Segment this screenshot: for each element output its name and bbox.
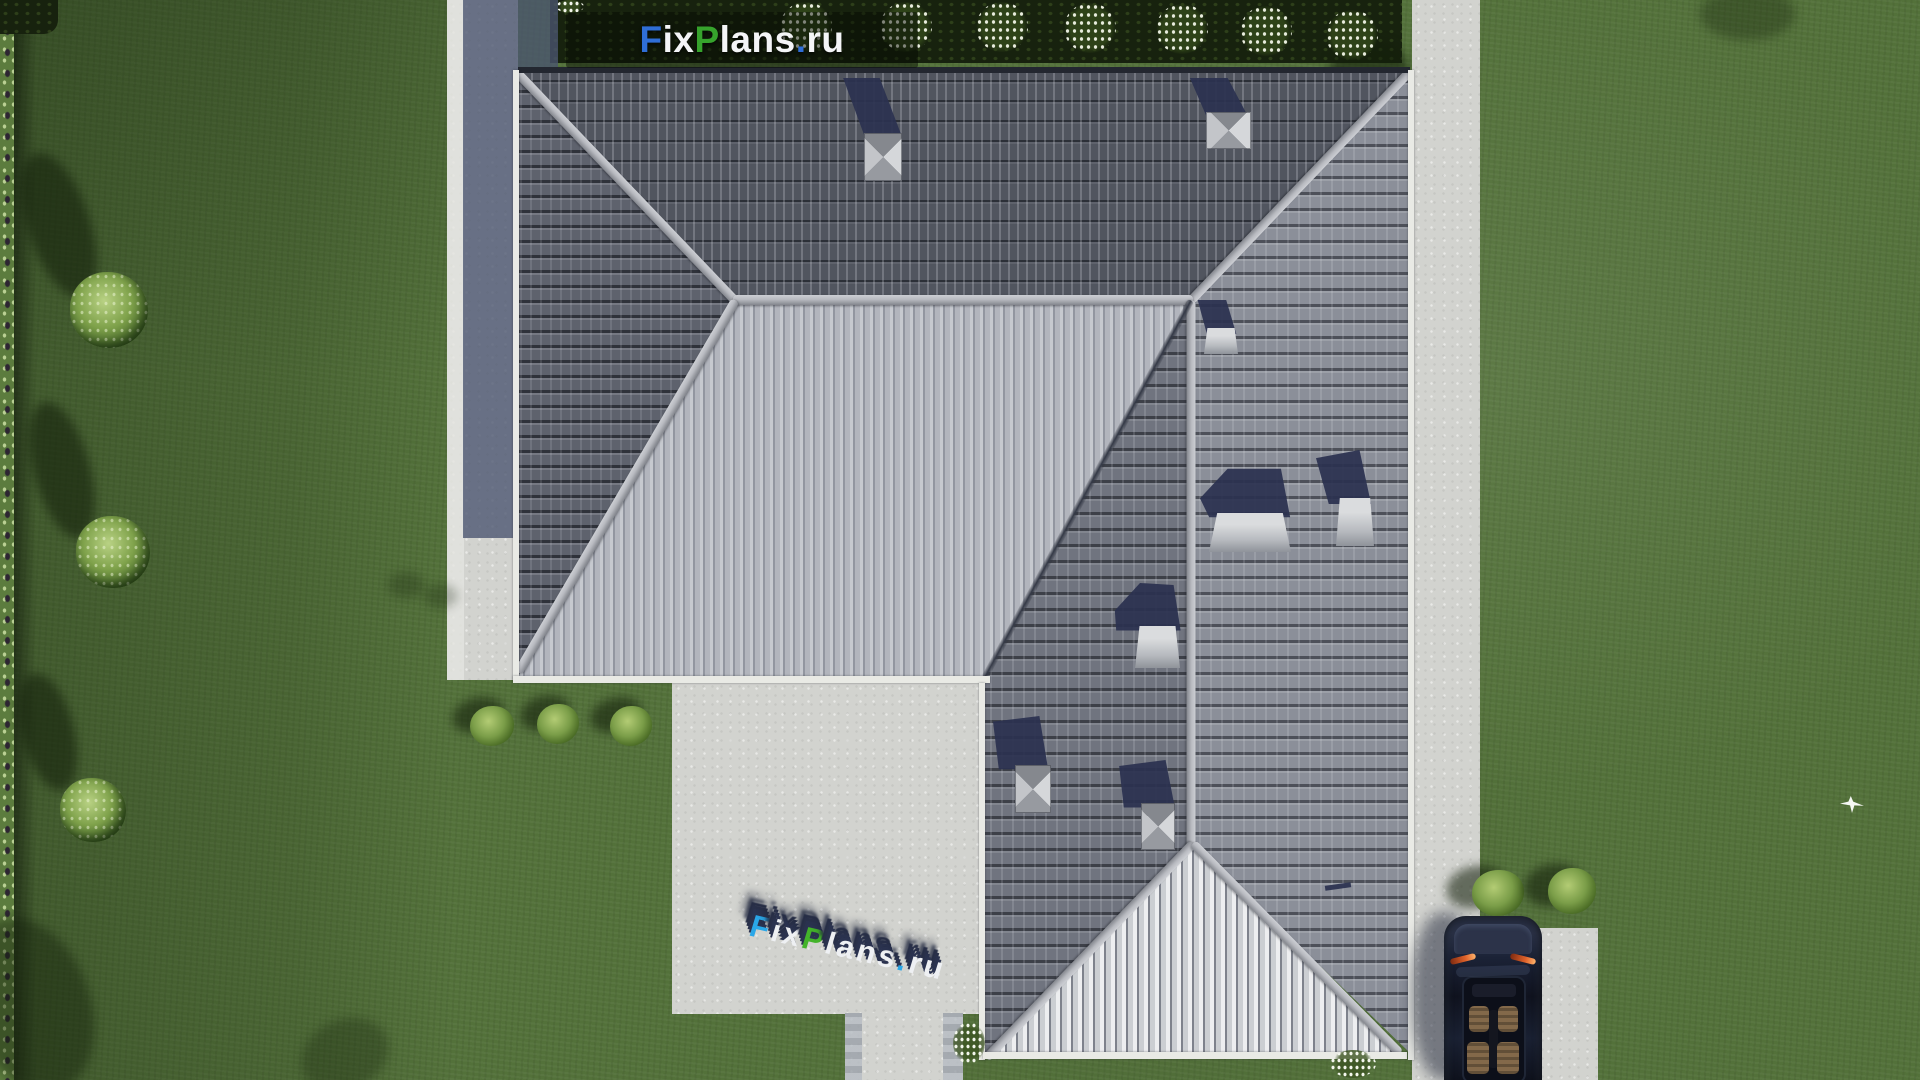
roof-hatch-small [1204, 328, 1238, 354]
car [1444, 916, 1542, 1080]
logo-letter: P [694, 19, 719, 61]
fascia-wing-west [979, 683, 985, 1060]
logo-letter: lans [720, 19, 796, 61]
flower-cluster-right [1330, 1050, 1376, 1078]
chimney-4 [1141, 803, 1175, 850]
roof-hatch-east [1336, 498, 1374, 546]
main-ridge [733, 295, 1193, 305]
roof-hatch-large [1209, 513, 1291, 552]
tree-3 [60, 778, 126, 842]
car-windshield-reflection [1456, 965, 1530, 978]
car-headrests [1472, 984, 1516, 997]
flower-bush-5 [1156, 4, 1208, 54]
fascia-south [513, 676, 990, 683]
car-taillight-left [1450, 953, 1477, 965]
aerial-render-scene: FixPlans.ru FixPlans.ru [0, 0, 1920, 1080]
logo-letter: F [640, 19, 663, 61]
car-seat-rear-left [1467, 1042, 1489, 1074]
fascia-east [1408, 70, 1414, 1060]
car-glass-roof [1462, 976, 1526, 1080]
chimney-1 [864, 133, 902, 181]
flower-bush-6 [1240, 6, 1292, 56]
tree-2 [76, 516, 150, 588]
chimney-3 [1015, 765, 1051, 813]
east-path [1412, 0, 1480, 930]
flower-bush-4 [1064, 3, 1116, 53]
chimney-2 [1206, 112, 1251, 149]
car-trunk [1454, 924, 1532, 954]
lawn-patch-1 [388, 572, 424, 598]
car-seat-front-left [1469, 1006, 1489, 1032]
house-shadow-west [463, 0, 518, 538]
lawn-patch-2 [424, 584, 458, 608]
logo-letter: ru [806, 19, 844, 61]
flower-bush-3 [976, 2, 1028, 52]
tree-1 [70, 272, 148, 348]
fixplans-logo: FixPlans.ru [566, 12, 918, 68]
car-seat-front-right [1498, 1006, 1518, 1032]
west-walkway-lit-edge [447, 0, 464, 680]
car-seat-rear-right [1497, 1042, 1519, 1074]
hedge-topleft-corner [0, 0, 58, 34]
flower-bush-7 [1326, 10, 1378, 60]
fascia-west [513, 70, 519, 680]
car-taillight-right [1510, 953, 1537, 965]
logo-letter: . [796, 19, 807, 61]
flower-cluster-left [953, 1022, 985, 1064]
roof-hatch-west [1135, 626, 1180, 668]
house-shadow-top [518, 0, 558, 74]
logo-letter: ix [663, 19, 695, 61]
wing-ridge [1187, 301, 1196, 850]
bottom-walkway-paver-edge-left [845, 1013, 862, 1080]
